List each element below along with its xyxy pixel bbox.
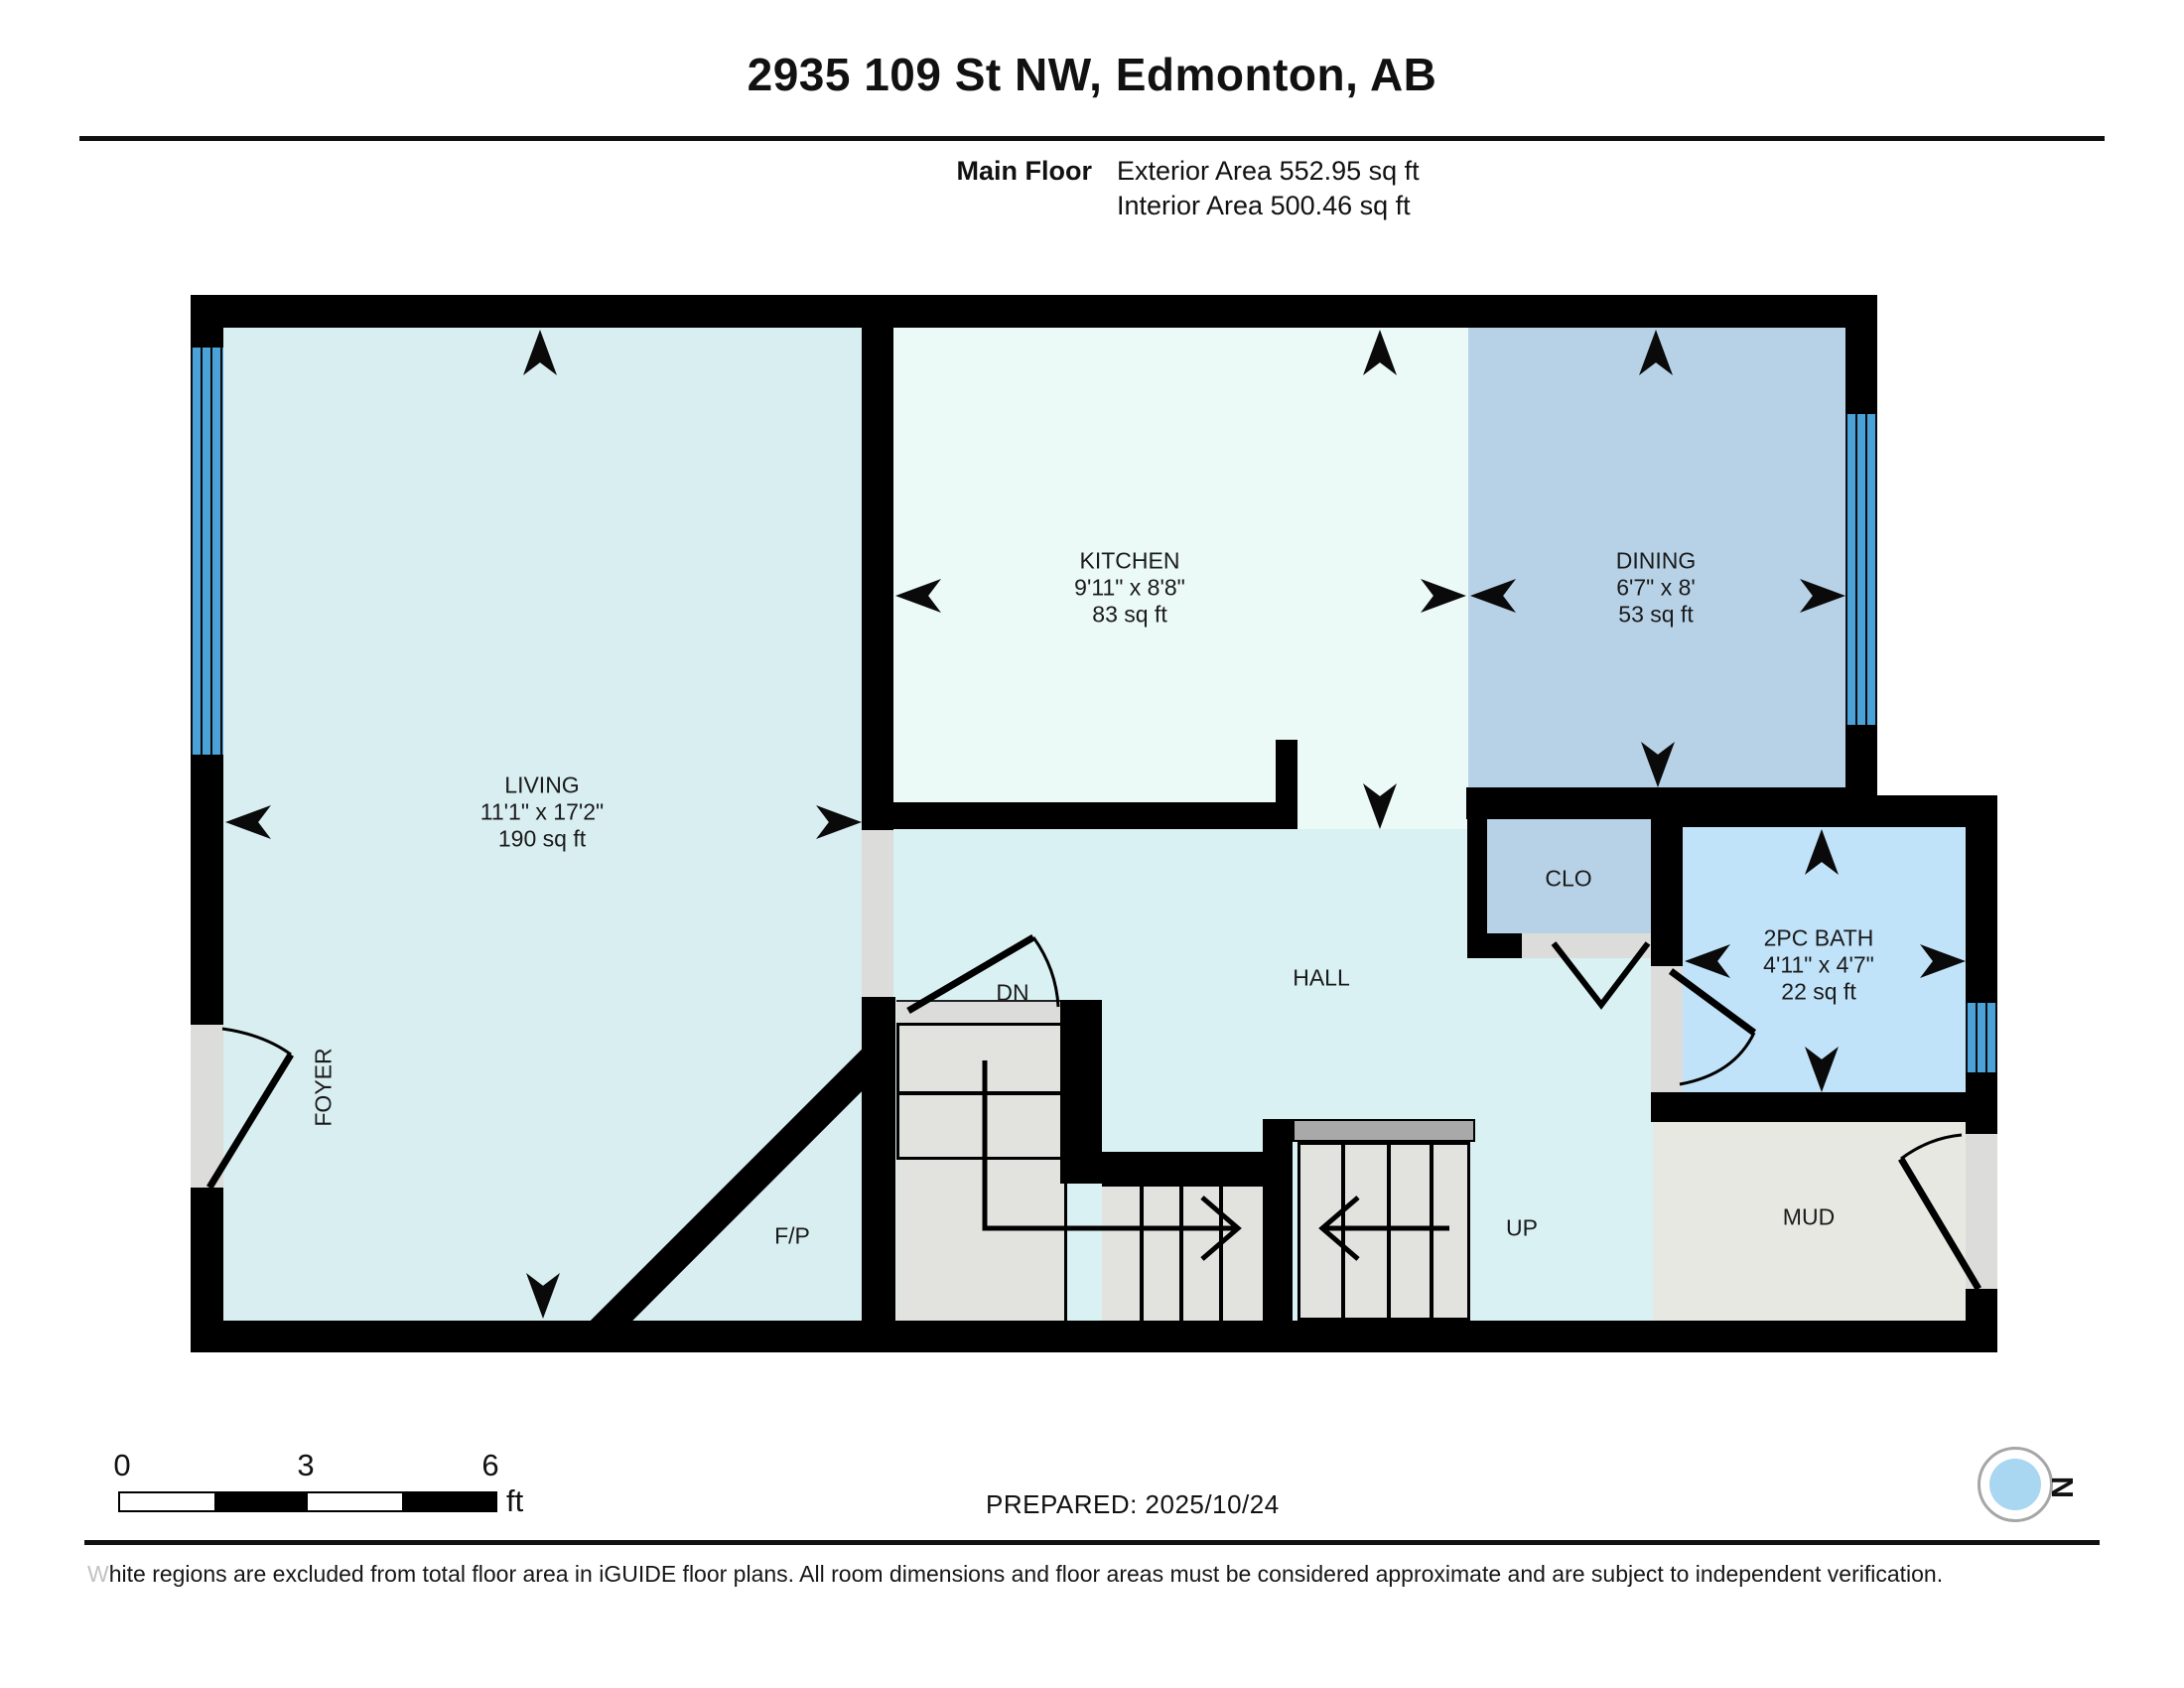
- label-bath: 2PC BATH 4'11" x 4'7" 22 sq ft: [1763, 925, 1874, 1006]
- room-area: 53 sq ft: [1616, 602, 1697, 629]
- compass-north-label: N: [2044, 1477, 2080, 1498]
- room-area: 190 sq ft: [480, 826, 604, 853]
- disclaimer-text: White regions are excluded from total fl…: [87, 1561, 2122, 1588]
- room-dims: 4'11" x 4'7": [1763, 952, 1874, 979]
- scale-bar-segment: [120, 1493, 214, 1510]
- label-stairs-up: UP: [1506, 1215, 1538, 1242]
- scale-bar-segment: [402, 1493, 496, 1510]
- label-dining: DINING 6'7" x 8' 53 sq ft: [1616, 548, 1697, 629]
- scale-bar-segment: [214, 1493, 309, 1510]
- label-living: LIVING 11'1" x 17'2" 190 sq ft: [480, 773, 604, 853]
- bath-door-leaf: [1671, 971, 1754, 1033]
- room-name: 2PC BATH: [1763, 925, 1874, 952]
- prepared-date: PREPARED: 2025/10/24: [986, 1489, 1280, 1520]
- bath-door-arc: [1680, 1033, 1754, 1084]
- dn-door-arc: [1033, 937, 1058, 1007]
- label-foyer: FOYER: [311, 1048, 338, 1126]
- compass-inner-circle: [1989, 1459, 2041, 1510]
- scale-bar: [118, 1491, 497, 1512]
- entry-door-leaf: [1901, 1159, 1979, 1289]
- room-area: 83 sq ft: [1074, 602, 1185, 629]
- label-stairs-down: DN: [996, 980, 1028, 1007]
- room-name: LIVING: [480, 773, 604, 799]
- label-mud: MUD: [1783, 1204, 1835, 1231]
- entry-door-arc: [1901, 1135, 1962, 1159]
- scale-tick-3: 3: [297, 1448, 314, 1483]
- plan-annotations-svg: [0, 0, 2184, 1688]
- room-name: DINING: [1616, 548, 1697, 575]
- label-kitchen: KITCHEN 9'11" x 8'8" 83 sq ft: [1074, 548, 1185, 629]
- scale-bar-segment: [308, 1493, 402, 1510]
- scale-unit: ft: [506, 1483, 523, 1519]
- label-closet: CLO: [1545, 866, 1591, 893]
- room-dims: 6'7" x 8': [1616, 575, 1697, 602]
- room-dims: 11'1" x 17'2": [480, 799, 604, 826]
- closet-door-v: [1554, 943, 1648, 1005]
- foyer-door-arc: [222, 1029, 291, 1055]
- room-dims: 9'11" x 8'8": [1074, 575, 1185, 602]
- label-hall: HALL: [1293, 965, 1350, 992]
- scale-tick-6: 6: [481, 1448, 498, 1483]
- dn-direction-arrow: [985, 1060, 1234, 1228]
- fireplace-diagonal-wall: [596, 1053, 880, 1336]
- floor-plan-page: 2935 109 St NW, Edmonton, AB Main Floor …: [0, 0, 2184, 1688]
- label-fireplace: F/P: [774, 1223, 810, 1250]
- room-area: 22 sq ft: [1763, 979, 1874, 1006]
- foyer-door-leaf: [209, 1055, 291, 1188]
- scale-tick-0: 0: [113, 1448, 130, 1483]
- footer-divider: [84, 1540, 2100, 1545]
- room-name: KITCHEN: [1074, 548, 1185, 575]
